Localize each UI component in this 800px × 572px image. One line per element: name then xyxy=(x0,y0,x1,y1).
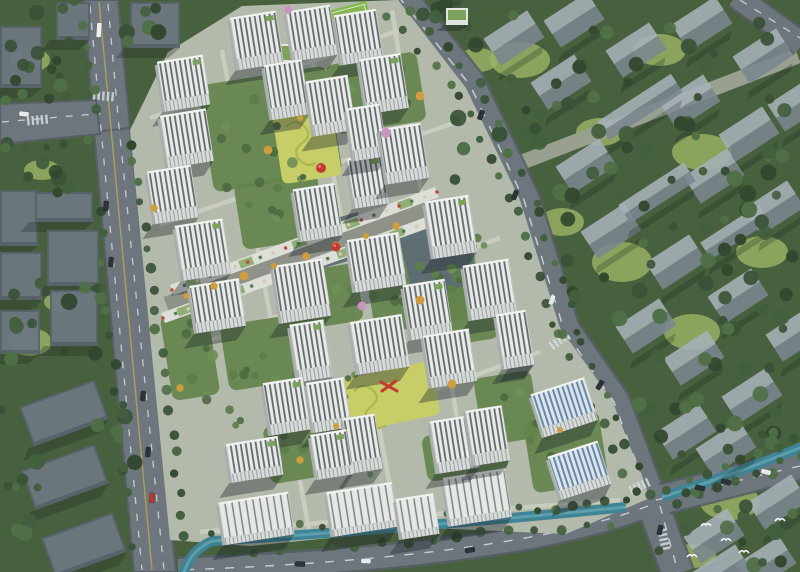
tree xyxy=(79,282,91,294)
tree xyxy=(429,10,443,24)
tree xyxy=(450,110,467,127)
tree xyxy=(225,405,234,414)
tree xyxy=(577,338,585,346)
tree xyxy=(559,276,567,284)
tree xyxy=(53,78,67,92)
tree xyxy=(251,372,259,380)
tree xyxy=(300,174,306,180)
tree xyxy=(8,289,20,301)
tree xyxy=(622,142,633,153)
tree xyxy=(63,182,75,194)
tree xyxy=(414,48,421,55)
tree xyxy=(667,176,675,184)
tree xyxy=(143,245,150,252)
tree xyxy=(162,385,172,395)
tree xyxy=(129,543,136,550)
tree xyxy=(17,525,33,541)
tree xyxy=(718,243,732,257)
pink-blossom-tree xyxy=(358,302,367,311)
tree xyxy=(698,220,711,233)
tree xyxy=(91,418,105,432)
tree xyxy=(518,169,526,177)
tree xyxy=(158,348,168,358)
tree xyxy=(207,350,218,361)
tree xyxy=(447,284,456,293)
tree xyxy=(239,370,249,380)
tree xyxy=(753,448,763,458)
tree xyxy=(599,272,609,282)
sculpture-highlight xyxy=(318,165,321,168)
tree xyxy=(619,439,630,450)
tree xyxy=(126,140,136,150)
tree xyxy=(681,38,697,54)
tree xyxy=(639,201,650,212)
building-roof xyxy=(359,53,407,103)
tree xyxy=(259,352,267,360)
orange-tree xyxy=(183,293,189,299)
car xyxy=(108,257,114,267)
tree xyxy=(146,263,157,274)
red-sphere-sculpture xyxy=(332,243,341,252)
tree xyxy=(118,462,128,472)
tree xyxy=(124,488,133,497)
tree xyxy=(416,7,430,21)
tree xyxy=(723,444,734,455)
tree xyxy=(506,74,517,85)
aerial-rendering-residential-masterplan xyxy=(0,0,800,572)
tree xyxy=(495,172,502,179)
tree xyxy=(44,94,54,104)
bus xyxy=(96,22,102,37)
tree xyxy=(229,370,238,379)
tree xyxy=(319,524,326,531)
tree xyxy=(99,228,108,237)
tree xyxy=(552,260,559,267)
tree xyxy=(565,353,573,361)
car xyxy=(140,391,146,401)
tree xyxy=(455,92,463,100)
tree xyxy=(635,463,643,471)
tree xyxy=(255,178,265,188)
car xyxy=(149,493,155,503)
tree xyxy=(631,283,647,299)
tree xyxy=(756,303,767,314)
building-roof xyxy=(496,310,533,358)
tree xyxy=(554,329,563,338)
orange-tree xyxy=(333,423,339,429)
tree xyxy=(722,463,729,470)
tree xyxy=(150,286,159,295)
tree xyxy=(765,95,774,104)
tree xyxy=(457,142,470,155)
tree xyxy=(752,470,760,478)
tree xyxy=(170,430,180,440)
tree xyxy=(476,78,486,88)
tree xyxy=(777,103,791,117)
tree xyxy=(84,91,93,100)
tree xyxy=(629,57,644,72)
tree xyxy=(741,202,757,218)
tree xyxy=(83,135,92,144)
tree xyxy=(35,278,47,290)
tree xyxy=(432,62,440,70)
tree xyxy=(149,324,160,335)
orange-tree xyxy=(240,272,249,281)
red-sphere-sculpture xyxy=(316,163,326,173)
tree xyxy=(776,457,783,464)
building-roof xyxy=(466,405,508,454)
tree xyxy=(568,300,576,308)
tree xyxy=(608,444,618,454)
tree xyxy=(17,474,28,485)
tree xyxy=(586,166,599,179)
tree xyxy=(405,6,415,16)
tree xyxy=(722,322,735,335)
tree xyxy=(111,359,122,370)
tree xyxy=(574,329,581,336)
tree xyxy=(536,272,546,282)
tree xyxy=(632,487,641,496)
tree xyxy=(0,142,10,152)
building-roof xyxy=(290,320,331,371)
tree xyxy=(740,185,757,202)
tree xyxy=(773,308,790,325)
tree xyxy=(588,363,595,370)
tree xyxy=(88,346,103,361)
orange-tree xyxy=(271,263,277,269)
tree xyxy=(584,522,591,529)
tree xyxy=(716,423,726,433)
tree xyxy=(97,259,105,267)
tree xyxy=(644,405,656,417)
tree xyxy=(345,375,352,382)
tree xyxy=(623,496,630,503)
tree xyxy=(163,405,173,415)
car xyxy=(295,561,305,567)
tree xyxy=(587,91,599,103)
orange-tree xyxy=(363,233,369,239)
tree xyxy=(654,429,668,443)
tree xyxy=(84,44,90,50)
tree xyxy=(10,75,21,86)
car xyxy=(19,111,29,117)
tree xyxy=(5,40,18,53)
tree xyxy=(122,514,130,522)
tree xyxy=(753,17,765,29)
tree xyxy=(664,22,676,34)
building-roof xyxy=(425,195,476,247)
tree xyxy=(775,149,789,163)
tree xyxy=(495,119,503,127)
tree xyxy=(549,321,555,327)
tree xyxy=(9,317,21,329)
orange-tree xyxy=(392,222,399,229)
tree xyxy=(296,520,304,528)
tree xyxy=(764,363,775,374)
tree xyxy=(618,126,634,142)
tree xyxy=(713,505,721,513)
tree xyxy=(753,386,769,402)
tree xyxy=(760,164,776,180)
tree xyxy=(738,362,752,376)
tree xyxy=(150,306,159,315)
tree xyxy=(114,435,123,444)
tree xyxy=(612,310,628,326)
tree xyxy=(530,526,538,534)
tree xyxy=(674,116,689,131)
tree xyxy=(560,254,573,267)
tree xyxy=(249,94,260,105)
orange-tree xyxy=(416,92,425,101)
orange-tree xyxy=(176,384,183,391)
tree xyxy=(535,109,546,120)
tree xyxy=(222,183,231,192)
tree xyxy=(43,144,50,151)
tree xyxy=(738,538,746,546)
pink-blossom-tree xyxy=(284,6,292,14)
tree xyxy=(560,212,575,227)
tree xyxy=(36,156,49,169)
tree xyxy=(654,546,663,555)
tree xyxy=(47,65,56,74)
tree xyxy=(604,392,611,399)
tree xyxy=(521,232,530,241)
tree xyxy=(769,407,781,419)
tree xyxy=(29,5,44,20)
tree xyxy=(91,104,101,114)
tree xyxy=(456,62,463,69)
tree xyxy=(59,140,68,149)
tree xyxy=(679,400,692,413)
tree xyxy=(686,477,693,484)
tree xyxy=(775,555,787,567)
tree xyxy=(514,207,523,216)
building-roof xyxy=(264,59,308,108)
tree xyxy=(116,408,127,419)
orange-tree xyxy=(210,282,217,289)
tree xyxy=(646,260,655,269)
tree xyxy=(508,10,518,20)
orange-tree xyxy=(416,296,425,305)
tree xyxy=(710,50,718,58)
tree xyxy=(12,483,20,491)
tree xyxy=(651,349,659,357)
tree xyxy=(122,36,133,47)
tree xyxy=(176,511,185,520)
tree xyxy=(105,331,113,339)
tree xyxy=(83,61,93,71)
orange-tree xyxy=(297,115,303,121)
tree xyxy=(17,59,29,71)
tree xyxy=(531,134,547,150)
tree xyxy=(182,329,191,338)
tree xyxy=(699,167,708,176)
tree xyxy=(552,101,562,111)
tree xyxy=(203,345,210,352)
tree xyxy=(491,126,507,142)
car xyxy=(103,201,109,211)
tree xyxy=(561,97,575,111)
tree xyxy=(551,78,562,89)
tree xyxy=(61,293,78,310)
tree xyxy=(99,285,106,292)
orange-tree xyxy=(296,456,303,463)
tree xyxy=(694,93,702,101)
tree xyxy=(134,178,142,186)
tree xyxy=(519,127,529,137)
tree xyxy=(127,455,142,470)
tree xyxy=(540,234,547,241)
tree xyxy=(110,387,119,396)
tree xyxy=(589,26,598,35)
orange-tree xyxy=(150,204,157,211)
tree xyxy=(31,46,45,60)
tree xyxy=(720,215,729,224)
tree xyxy=(645,490,655,500)
tree xyxy=(500,393,508,401)
tree xyxy=(720,521,734,535)
tree xyxy=(95,292,108,305)
tree xyxy=(534,200,541,207)
tree xyxy=(221,122,230,131)
tree xyxy=(187,373,198,384)
tree xyxy=(789,434,798,443)
tree xyxy=(415,261,425,271)
tree xyxy=(208,530,215,537)
tree xyxy=(786,250,798,262)
tree xyxy=(27,318,37,328)
tree xyxy=(779,324,788,333)
tree xyxy=(503,148,513,158)
tree xyxy=(721,264,733,276)
tree xyxy=(698,352,711,365)
tree xyxy=(58,3,69,14)
tree xyxy=(382,12,390,20)
tree xyxy=(4,352,18,366)
tree xyxy=(515,504,522,511)
tree xyxy=(522,106,530,114)
tree xyxy=(617,469,627,479)
tree xyxy=(677,450,685,458)
tree xyxy=(787,508,797,518)
tree xyxy=(672,499,682,509)
tree xyxy=(450,174,461,185)
tree xyxy=(150,24,166,40)
tree xyxy=(468,37,483,52)
tree xyxy=(774,443,783,452)
tree xyxy=(456,276,463,283)
tree xyxy=(481,242,488,249)
tree xyxy=(17,89,28,100)
tree xyxy=(636,142,653,159)
tree xyxy=(0,95,10,105)
tree xyxy=(623,77,633,87)
tree xyxy=(119,401,127,409)
tree xyxy=(21,146,28,153)
tree xyxy=(150,3,161,14)
tree xyxy=(662,486,671,495)
tree xyxy=(62,91,72,101)
tree xyxy=(529,123,541,135)
tree xyxy=(170,469,178,477)
tree xyxy=(23,172,33,182)
tree xyxy=(739,499,753,513)
tree xyxy=(698,275,713,290)
tree xyxy=(607,522,615,530)
tree xyxy=(524,252,532,260)
pink-blossom-tree xyxy=(381,128,391,138)
tree xyxy=(61,347,69,355)
tree xyxy=(78,21,88,31)
tree xyxy=(702,469,712,479)
tree xyxy=(268,206,276,214)
tree xyxy=(33,483,41,491)
tree xyxy=(480,95,489,104)
tree xyxy=(772,191,781,200)
tree xyxy=(64,37,74,47)
tree xyxy=(700,253,715,268)
tree xyxy=(681,488,690,497)
tree xyxy=(136,198,143,205)
tree xyxy=(727,170,743,186)
tree xyxy=(758,430,766,438)
tree xyxy=(600,25,614,39)
tree xyxy=(679,523,692,536)
tree xyxy=(53,187,63,197)
tree xyxy=(754,214,768,228)
tree xyxy=(712,482,722,492)
tree xyxy=(232,422,239,429)
tree xyxy=(487,154,497,164)
tree xyxy=(172,446,182,456)
tree xyxy=(669,222,677,230)
tree xyxy=(735,454,745,464)
orange-tree xyxy=(448,380,457,389)
tree xyxy=(245,201,253,209)
tree xyxy=(177,489,185,497)
tree xyxy=(202,395,211,404)
car xyxy=(145,447,151,457)
tree xyxy=(591,124,606,139)
tree xyxy=(572,60,586,74)
tree xyxy=(332,284,342,294)
tree xyxy=(638,238,648,248)
tree xyxy=(52,56,61,65)
tree xyxy=(303,540,312,549)
tree xyxy=(217,134,226,143)
scene-canvas xyxy=(0,0,800,572)
tree xyxy=(762,144,777,159)
orange-tree xyxy=(264,146,273,155)
tree xyxy=(731,477,740,486)
tree xyxy=(287,157,298,168)
tree xyxy=(447,81,455,89)
tree xyxy=(179,531,189,541)
tree xyxy=(527,436,535,444)
tree xyxy=(779,288,792,301)
tree xyxy=(652,309,667,324)
orange-tree xyxy=(557,427,563,433)
tree xyxy=(743,270,758,285)
car xyxy=(361,558,371,563)
tree xyxy=(613,414,620,421)
tree xyxy=(718,291,731,304)
tree xyxy=(758,558,767,567)
tree xyxy=(534,507,541,514)
tree xyxy=(614,189,623,198)
building-roof xyxy=(403,279,451,329)
tree xyxy=(476,136,483,143)
